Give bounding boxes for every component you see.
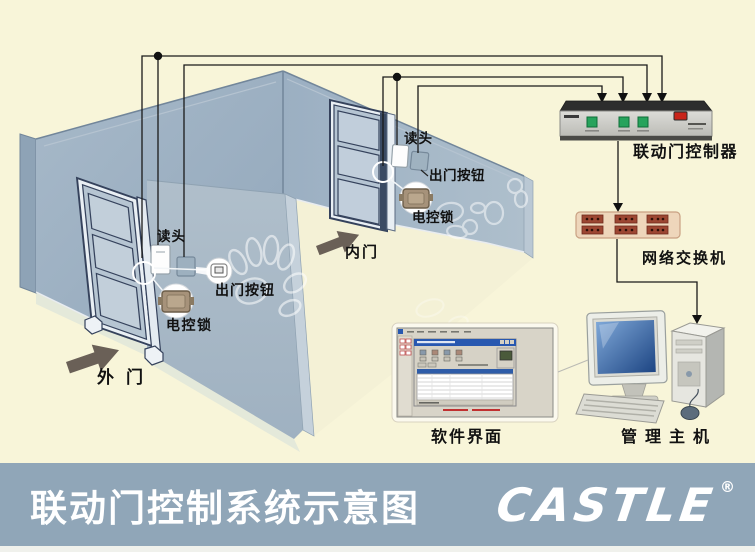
controller-button-icon xyxy=(587,117,597,127)
network-switch-label: 网络交换机 xyxy=(642,249,727,267)
brand-logo: CASTLE ® xyxy=(497,482,731,528)
tower-icon xyxy=(672,323,724,407)
inner-door xyxy=(330,100,395,231)
host-computer xyxy=(576,311,724,423)
network-switch-device xyxy=(576,212,680,238)
inner-exit-button-label: 出门按钮 xyxy=(429,167,485,184)
inner-door-label: 内门 xyxy=(345,243,379,261)
footer-bar: 联动门控制系统示意图 CASTLE ® xyxy=(0,463,755,546)
registered-trademark-icon: ® xyxy=(720,478,735,496)
host-label: 管理主机 xyxy=(621,427,717,446)
reader-icon xyxy=(391,144,408,167)
controller-button-icon xyxy=(638,117,648,127)
monitor-icon xyxy=(587,311,667,386)
controller-power-switch-icon xyxy=(674,112,687,120)
controller-device xyxy=(560,101,712,141)
schematic-page: 读头 出门按钮 电控锁 外门 读头 出门按钮 电控锁 内门 联动门控制器 网络交… xyxy=(0,0,755,552)
software-window xyxy=(392,323,588,422)
outer-exit-button-label: 出门按钮 xyxy=(215,282,275,299)
controller-label: 联动门控制器 xyxy=(633,142,738,161)
controller-button-icon xyxy=(619,117,629,127)
exit-button-icon xyxy=(177,257,195,276)
page-title: 联动门控制系统示意图 xyxy=(30,478,420,532)
lock-icon xyxy=(158,284,194,318)
outer-reader-label: 读头 xyxy=(157,228,186,245)
brand-wordmark: CASTLE xyxy=(494,482,719,528)
exit-button-icon xyxy=(410,151,429,171)
software-dialog xyxy=(414,339,516,406)
room-diagram: 读头 出门按钮 电控锁 外门 读头 出门按钮 电控锁 内门 联动门控制器 网络交… xyxy=(0,0,755,463)
inner-lock-label: 电控锁 xyxy=(412,209,454,226)
bottom-strip xyxy=(0,546,755,552)
inner-reader-label: 读头 xyxy=(404,130,433,147)
monitor-stand xyxy=(622,384,646,397)
controller-brand-mark xyxy=(564,115,579,118)
software-label: 软件界面 xyxy=(431,427,503,446)
outer-lock-label: 电控锁 xyxy=(166,317,213,334)
outer-door-label: 外门 xyxy=(97,367,155,388)
